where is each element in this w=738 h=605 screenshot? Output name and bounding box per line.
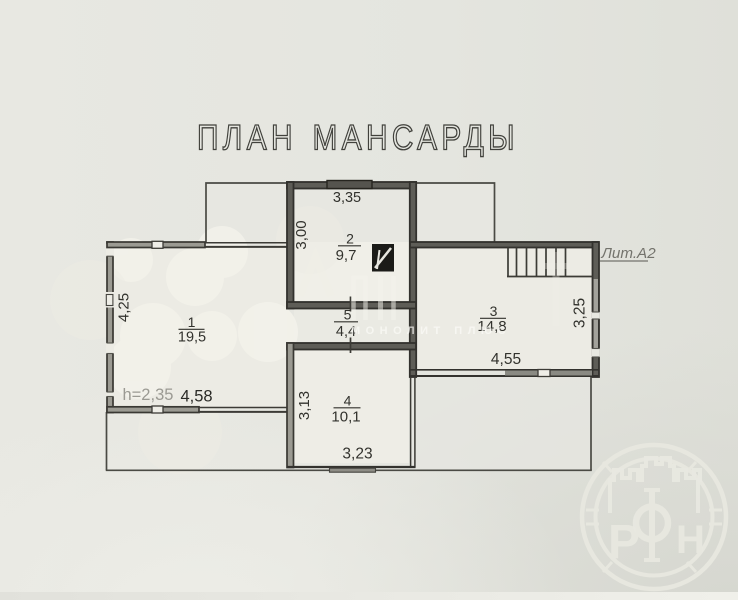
svg-text:h=2,35: h=2,35 — [123, 386, 174, 404]
svg-text:3,25: 3,25 — [572, 298, 589, 328]
svg-text:3: 3 — [490, 303, 498, 319]
svg-text:4: 4 — [344, 393, 352, 409]
svg-text:10,1: 10,1 — [331, 409, 360, 426]
svg-text:МАНСАРДЫ: МАНСАРДЫ — [313, 117, 519, 157]
svg-text:ПЛАН: ПЛАН — [197, 117, 297, 157]
svg-text:3,23: 3,23 — [342, 446, 372, 463]
svg-text:2: 2 — [346, 231, 354, 247]
svg-text:1: 1 — [188, 314, 196, 330]
svg-text:4,58: 4,58 — [181, 388, 213, 406]
svg-text:3,13: 3,13 — [296, 391, 313, 420]
svg-text:4,55: 4,55 — [491, 351, 521, 368]
svg-text:МОНОЛИТ ПЛЮС: МОНОЛИТ ПЛЮС — [351, 325, 511, 337]
svg-text:Лит.А2: Лит.А2 — [601, 245, 657, 262]
svg-text:9,7: 9,7 — [336, 247, 357, 264]
svg-text:Н: Н — [676, 518, 705, 562]
svg-text:3,00: 3,00 — [293, 220, 310, 249]
svg-text:4,25: 4,25 — [116, 293, 133, 322]
svg-text:19,5: 19,5 — [178, 330, 206, 346]
svg-text:5: 5 — [344, 307, 352, 323]
svg-text:3,35: 3,35 — [333, 190, 361, 206]
